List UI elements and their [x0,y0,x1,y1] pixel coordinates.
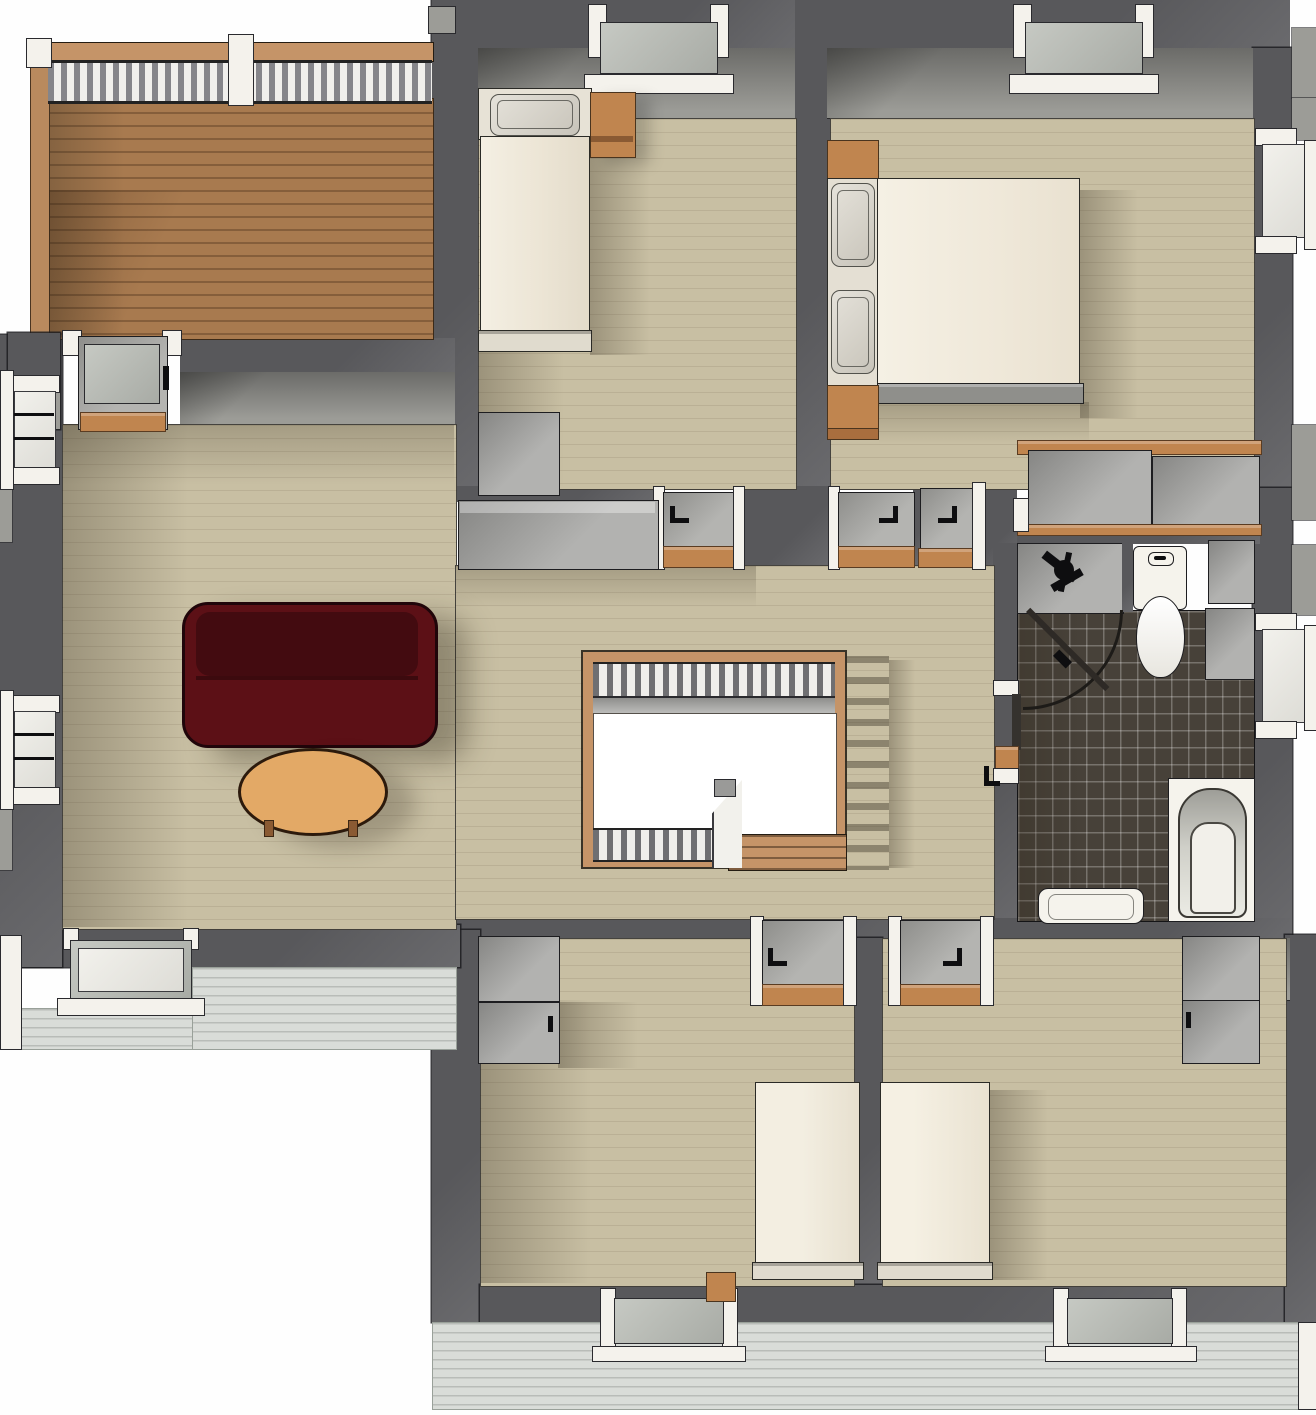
bedroom2-east-window-cap-bottom [1255,236,1297,254]
closet-sliding-panel-2 [1152,456,1260,528]
bathroom-window-outer [1304,625,1316,731]
bed1-nightstand [590,92,636,158]
shadow-bed2-south [879,402,1089,444]
bathroom-side-cabinet [1208,540,1255,604]
living-west-window1-mullion1 [14,413,54,416]
bedroom4-window-pane [1067,1298,1173,1344]
deck-door-handle [163,366,169,390]
living-west-window1-mullion2 [14,437,54,440]
living-west-window2-mullion1 [14,733,54,736]
coffee-table-leg-2 [348,820,358,837]
bed4-footboard [877,1262,993,1280]
bed1-nightstand-drawer [591,136,633,142]
door3-leaf [762,920,845,988]
bedroom2-east-window-outer [1304,140,1316,250]
wall-east-upper [1253,48,1292,488]
door1-jamb-right [733,486,745,570]
bed1-footboard [478,330,592,352]
bathtub-inner [1190,822,1236,914]
cap-deck-wall-corner [428,6,456,34]
closet-left-trim [1013,498,1029,532]
bathroom-side-counter [1205,608,1255,680]
bed2-pillow-2-inner [837,297,869,367]
deck-door-glass [84,344,160,404]
bed3-footboard [752,1262,864,1280]
bed2-nightstand-drawer [827,428,879,440]
shadow-bed1-right [590,140,650,355]
bedroom2-east-window-pane [1262,144,1306,238]
siding-left-post [0,935,22,1050]
bathroom-door-threshold [995,746,1019,770]
door3-threshold [762,984,845,1006]
floor-plan-canvas [0,0,1316,1415]
face-living-north-shadow [180,372,270,424]
deck-post-left [26,38,52,68]
door2b-handle-h [938,518,957,523]
bed2-footbar [877,383,1084,404]
wall-hall-north-b [743,486,830,568]
bed1-mattress [480,136,590,334]
stairwell-balusters-top [593,662,835,700]
bedroom2-window-sill [1009,74,1159,94]
stairwell-newel-cap [714,779,736,797]
deck-door-threshold [80,412,166,432]
shadow-living-west [63,424,188,927]
living-south-window-sill [57,998,205,1016]
toilet-bowl [1136,596,1185,678]
living-west-window2-outer-sill [0,690,14,810]
bedroom1-wardrobe [478,412,560,496]
bedroom3-window-pane [614,1298,724,1344]
bathroom-door-leaf [1012,694,1021,750]
bed3-mattress [755,1082,860,1267]
door2a-handle-h [879,518,898,523]
shadow-hall-closet [456,566,756,608]
bathroom-door-handle-h [984,781,1000,786]
shadow-cabinets3 [558,1002,638,1068]
bedroom4-cabinet-handle [1186,1012,1191,1028]
living-west-window1-pane [14,391,56,469]
closet-wood-track [1017,524,1262,536]
bedroom4-cabinet-upper [1182,936,1260,1002]
ledge-left-upper [0,482,12,542]
door4-handle-h [943,961,962,966]
door3-jamb-right [843,916,857,1006]
bed4-mattress [880,1082,990,1267]
stairwell-soft-shadow [889,660,915,868]
wall-between-top-bedrooms [795,0,830,488]
ledge-top-right-corner [1292,28,1316,98]
shadow-bed4-right [990,1090,1048,1280]
shower-tray-inner [1048,894,1134,920]
coffee-table-leg-1 [264,820,274,837]
sofa-seat-line [196,676,418,680]
bedroom3-cabinet-lower [478,1002,560,1064]
hall-closet-top-band [460,502,655,513]
door2b-jamb-right [972,482,986,570]
door3-handle-h [768,961,787,966]
living-west-window2-mullion2 [14,757,54,760]
shadow-living-north [63,425,454,485]
bedroom4-cabinet-lower [1182,1000,1260,1064]
door1-threshold [663,546,735,568]
bathroom-window-pane [1262,629,1306,723]
bed3-nightstand [706,1272,736,1302]
bed2-nightstand-top [827,140,879,180]
bedroom1-window-sill [584,74,734,94]
bedroom3-cabinet-upper [478,936,560,1002]
ledge-right-above-bath-window [1292,545,1316,615]
bathroom-window-cap-bottom [1255,721,1297,739]
wall-living-north [180,338,455,372]
door2a-threshold [838,546,915,568]
bathroom-wall-gap [1122,543,1133,612]
bedroom2-window-pane [1025,22,1143,74]
door1-handle-h [670,518,689,523]
deck-shadow-wedge [49,190,209,338]
living-west-window1-outer-sill [0,370,14,490]
deck-post-middle [228,34,254,106]
bed2-mattress [877,178,1080,387]
ledge-left-lower [0,808,12,870]
living-west-window2-pane [14,711,56,789]
face-bedroom2-shadow [827,48,947,118]
siding-left-b [192,967,457,1050]
bedroom3-cabinet-handle [548,1016,553,1032]
bedroom4-window-sill [1045,1346,1197,1362]
sofa-backrest [196,612,418,676]
bedroom1-window-pane [600,22,718,74]
bed2-pillow-1-inner [837,190,869,260]
toilet-flush-dot [1154,556,1166,560]
door2b-threshold [918,548,974,568]
siding-bottom-right-post [1298,1322,1316,1410]
door4-jamb-right [980,916,994,1006]
coffee-table [238,748,388,836]
bedroom3-window-sill [592,1346,746,1362]
closet-sliding-panel-1 [1028,450,1152,526]
deck-left-plank [30,62,50,340]
bed1-pillow-inner [497,100,573,129]
stairwell-steps [728,834,847,871]
shadow-bed2-right [1080,190,1138,418]
door4-threshold [900,984,982,1006]
ledge-right-mid [1292,425,1316,520]
living-south-window-inner [78,948,184,992]
stairwell-railing-shadow [847,656,889,870]
stairwell-balusters-bottom [593,828,730,862]
door4-leaf [900,920,982,988]
